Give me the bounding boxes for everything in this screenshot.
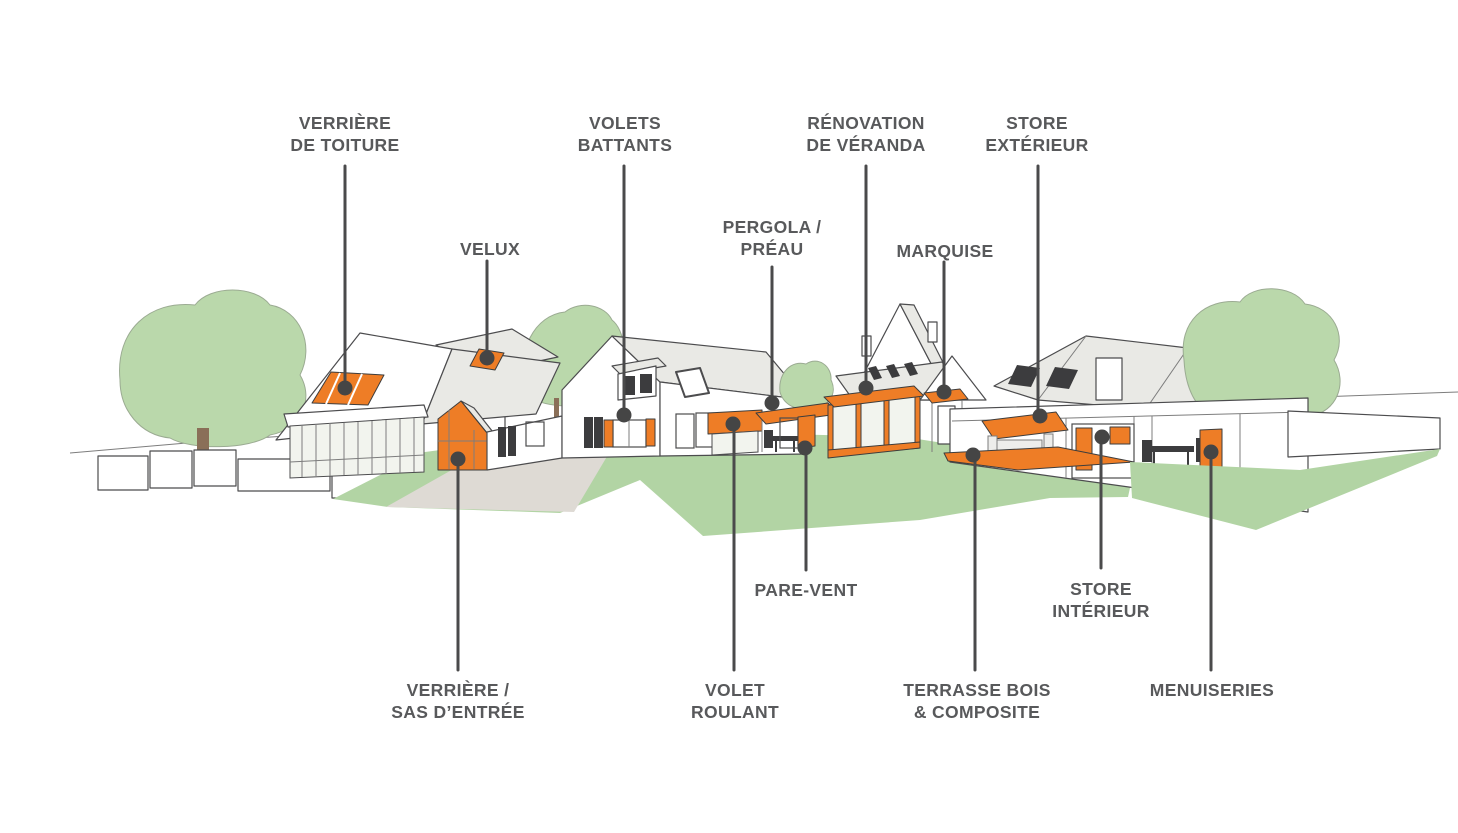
anchor-volets-battants xyxy=(617,408,632,423)
label-line: VERRIÈRE xyxy=(290,112,399,134)
label-line: PRÉAU xyxy=(723,238,822,260)
label-line: VERRIÈRE / xyxy=(391,679,525,701)
anchor-velux xyxy=(480,351,495,366)
hinged-shutters-orange xyxy=(604,419,655,447)
label-line: TERRASSE BOIS xyxy=(903,679,1051,701)
label-line: DE VÉRANDA xyxy=(806,134,925,156)
anchor-verriere-de-toiture xyxy=(338,381,353,396)
label-store-interieur: STORE INTÉRIEUR xyxy=(1052,578,1149,622)
small-round-tree xyxy=(780,361,833,409)
anchor-pergola-preau xyxy=(765,396,780,411)
anchor-store-exterieur xyxy=(1033,409,1048,424)
label-line: ROULANT xyxy=(691,701,779,723)
anchor-terrasse-bois-composite xyxy=(966,448,981,463)
label-line: MARQUISE xyxy=(896,240,993,262)
label-store-exterieur: STORE EXTÉRIEUR xyxy=(985,112,1088,156)
label-line: STORE xyxy=(985,112,1088,134)
label-line: PERGOLA / xyxy=(723,216,822,238)
label-line: PARE-VENT xyxy=(755,579,858,601)
conservatory xyxy=(284,405,428,478)
left-house xyxy=(276,329,562,478)
anchor-volet-roulant xyxy=(726,417,741,432)
label-line: SAS D’ENTRÉE xyxy=(391,701,525,723)
anchor-marquise xyxy=(937,385,952,400)
label-line: VOLETS xyxy=(578,112,673,134)
anchor-menuiseries xyxy=(1204,445,1219,460)
label-volet-roulant: VOLET ROULANT xyxy=(691,679,779,723)
label-line: MENUISERIES xyxy=(1150,679,1274,701)
label-line: VELUX xyxy=(460,238,520,260)
label-line: RÉNOVATION xyxy=(806,112,925,134)
anchor-pare-vent xyxy=(798,441,813,456)
label-verriere-sas-entree: VERRIÈRE / SAS D’ENTRÉE xyxy=(391,679,525,723)
label-line: DE TOITURE xyxy=(290,134,399,156)
anchor-renovation-de-veranda xyxy=(859,381,874,396)
label-terrasse-bois-composite: TERRASSE BOIS & COMPOSITE xyxy=(903,679,1051,723)
garden-wall xyxy=(1288,411,1440,457)
label-pare-vent: PARE-VENT xyxy=(755,579,858,601)
label-marquise: MARQUISE xyxy=(896,240,993,262)
label-menuiseries: MENUISERIES xyxy=(1150,679,1274,701)
label-line: VOLET xyxy=(691,679,779,701)
anchor-store-interieur xyxy=(1095,430,1110,445)
label-velux: VELUX xyxy=(460,238,520,260)
label-pergola-preau: PERGOLA / PRÉAU xyxy=(723,216,822,260)
left-tree xyxy=(120,290,306,458)
label-line: EXTÉRIEUR xyxy=(985,134,1088,156)
label-line: BATTANTS xyxy=(578,134,673,156)
label-verriere-de-toiture: VERRIÈRE DE TOITURE xyxy=(290,112,399,156)
label-line: STORE xyxy=(1052,578,1149,600)
anchor-verriere-sas-entree xyxy=(451,452,466,467)
veranda-orange xyxy=(824,386,924,458)
label-line: INTÉRIEUR xyxy=(1052,600,1149,622)
label-line: & COMPOSITE xyxy=(903,701,1051,723)
label-renovation-de-veranda: RÉNOVATION DE VÉRANDA xyxy=(806,112,925,156)
label-volets-battants: VOLETS BATTANTS xyxy=(578,112,673,156)
product-map-illustration: VERRIÈRE DE TOITURE VELUX VOLETS BATTANT… xyxy=(0,0,1458,833)
